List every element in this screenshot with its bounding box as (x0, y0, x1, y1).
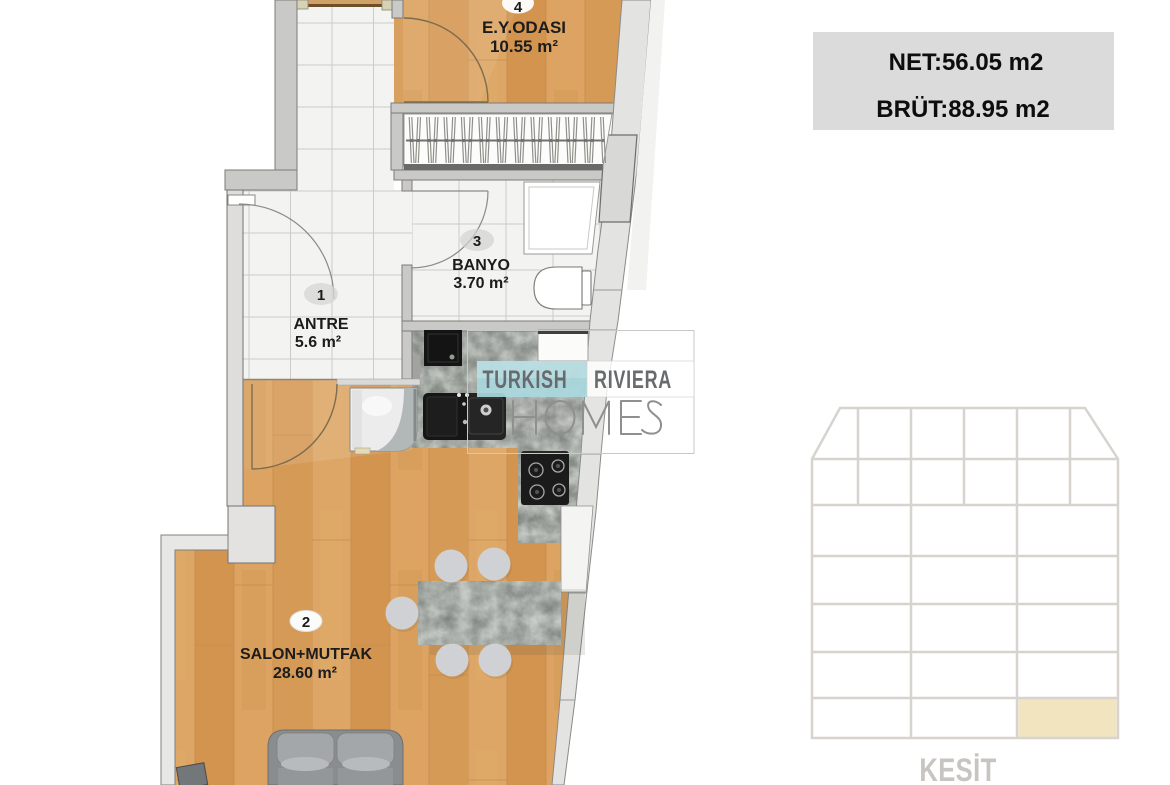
svg-text:3: 3 (473, 233, 481, 250)
svg-text:4: 4 (514, 0, 523, 16)
svg-text:KESİT: KESİT (919, 753, 996, 785)
svg-text:BRÜT:88.95 m2: BRÜT:88.95 m2 (876, 96, 1049, 123)
svg-text:SALON+MUTFAK: SALON+MUTFAK (240, 646, 372, 663)
svg-text:5.6 m²: 5.6 m² (295, 334, 341, 351)
svg-text:NET:56.05 m2: NET:56.05 m2 (889, 49, 1044, 76)
svg-text:10.55 m²: 10.55 m² (490, 37, 558, 56)
svg-text:E.Y.ODASI: E.Y.ODASI (482, 18, 566, 37)
svg-text:1: 1 (317, 287, 325, 304)
svg-text:TURKISH: TURKISH (483, 365, 568, 394)
svg-text:2: 2 (302, 614, 310, 631)
svg-text:28.60 m²: 28.60 m² (273, 665, 337, 682)
svg-text:3.70 m²: 3.70 m² (453, 275, 508, 292)
svg-text:ANTRE: ANTRE (293, 316, 348, 333)
svg-text:BANYO: BANYO (452, 257, 510, 274)
svg-text:RIVIERA: RIVIERA (594, 365, 672, 394)
